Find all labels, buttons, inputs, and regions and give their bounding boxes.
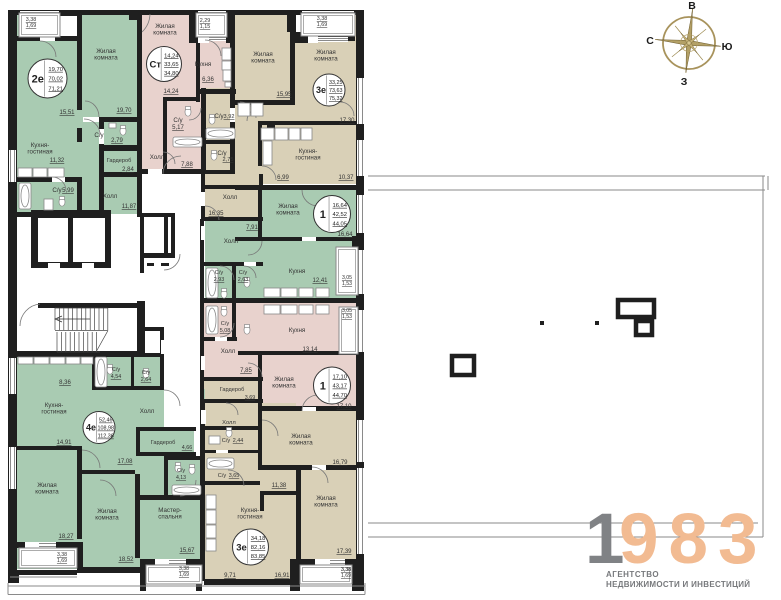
svg-text:С/у: С/у xyxy=(215,270,224,276)
svg-text:70,02: 70,02 xyxy=(48,77,63,83)
svg-text:52,46: 52,46 xyxy=(99,418,113,424)
svg-text:С/у: С/у xyxy=(112,367,121,373)
svg-text:2,84: 2,84 xyxy=(122,167,134,173)
svg-text:7,91: 7,91 xyxy=(246,225,258,231)
svg-text:17,39: 17,39 xyxy=(336,549,352,555)
svg-text:Холл: Холл xyxy=(221,348,236,355)
svg-text:4,54: 4,54 xyxy=(111,374,122,380)
svg-text:1,69: 1,69 xyxy=(26,23,37,29)
svg-text:16,35: 16,35 xyxy=(208,211,224,217)
svg-text:комната: комната xyxy=(153,30,177,37)
svg-text:7,88: 7,88 xyxy=(181,162,193,168)
svg-text:1,69: 1,69 xyxy=(179,572,189,578)
svg-text:17,08: 17,08 xyxy=(117,459,133,465)
svg-text:14,24: 14,24 xyxy=(164,53,179,59)
svg-text:14,24: 14,24 xyxy=(163,89,179,95)
svg-text:С/у: С/у xyxy=(217,150,227,157)
svg-text:2,64: 2,64 xyxy=(141,377,152,383)
svg-text:1,15: 1,15 xyxy=(200,24,211,30)
svg-text:С/у: С/у xyxy=(177,468,185,474)
svg-text:9,71: 9,71 xyxy=(224,573,236,579)
svg-text:10,37: 10,37 xyxy=(338,175,354,181)
svg-text:44,70: 44,70 xyxy=(333,393,348,399)
svg-text:16,91: 16,91 xyxy=(274,573,290,579)
svg-text:1: 1 xyxy=(320,380,326,392)
svg-text:11,87: 11,87 xyxy=(122,204,137,210)
svg-text:5,08: 5,08 xyxy=(220,328,231,334)
svg-text:З: З xyxy=(681,76,688,88)
svg-text:16,79: 16,79 xyxy=(332,460,348,466)
svg-text:1,69: 1,69 xyxy=(317,22,328,28)
svg-text:7,85: 7,85 xyxy=(240,368,252,374)
svg-text:4,66: 4,66 xyxy=(182,445,193,451)
svg-text:С/у: С/у xyxy=(142,370,151,376)
svg-text:3е: 3е xyxy=(316,85,326,95)
svg-text:Холл: Холл xyxy=(222,420,236,426)
svg-text:12,41: 12,41 xyxy=(312,278,328,284)
svg-text:1,53: 1,53 xyxy=(342,314,352,320)
svg-text:11,32: 11,32 xyxy=(50,158,65,164)
svg-text:С/у: С/у xyxy=(221,321,230,327)
svg-text:Холл: Холл xyxy=(150,154,165,161)
svg-text:16,64: 16,64 xyxy=(337,232,353,238)
svg-text:73,63: 73,63 xyxy=(329,88,343,94)
svg-text:Холл: Холл xyxy=(224,238,239,245)
svg-text:11,38: 11,38 xyxy=(272,483,287,489)
svg-text:1,69: 1,69 xyxy=(57,558,67,564)
svg-text:34,18: 34,18 xyxy=(251,536,266,542)
svg-text:Холл: Холл xyxy=(223,194,238,201)
svg-text:33,65: 33,65 xyxy=(164,62,179,68)
svg-text:19,70: 19,70 xyxy=(48,67,63,73)
svg-text:Холл: Холл xyxy=(140,408,155,415)
svg-text:комната: комната xyxy=(276,210,300,217)
svg-text:С/у: С/у xyxy=(52,187,62,194)
svg-text:2,75: 2,75 xyxy=(223,157,234,163)
svg-text:комната: комната xyxy=(314,502,338,509)
svg-text:АГЕНТСТВО: АГЕНТСТВО xyxy=(606,570,659,579)
svg-text:17,10: 17,10 xyxy=(336,404,352,410)
svg-text:14,91: 14,91 xyxy=(56,440,72,446)
svg-text:комната: комната xyxy=(251,58,275,65)
svg-text:2,44: 2,44 xyxy=(233,438,244,444)
svg-text:15,67: 15,67 xyxy=(179,548,195,554)
svg-text:С/у: С/у xyxy=(173,117,183,124)
svg-text:4,13: 4,13 xyxy=(176,475,186,481)
svg-text:16,64: 16,64 xyxy=(333,203,348,209)
svg-text:6,36: 6,36 xyxy=(202,77,214,83)
svg-text:3,38: 3,38 xyxy=(341,567,351,573)
svg-text:17,30: 17,30 xyxy=(339,118,355,124)
svg-text:43,17: 43,17 xyxy=(333,384,348,390)
svg-text:4е: 4е xyxy=(86,423,96,433)
svg-text:2,93: 2,93 xyxy=(214,277,225,283)
svg-text:1: 1 xyxy=(320,209,326,221)
svg-text:Гардероб: Гардероб xyxy=(151,440,176,446)
svg-text:2,79: 2,79 xyxy=(111,138,123,144)
svg-text:комната: комната xyxy=(95,515,119,522)
svg-text:Кухня: Кухня xyxy=(195,61,212,68)
svg-text:19,70: 19,70 xyxy=(116,108,132,114)
svg-text:гостиная: гостиная xyxy=(237,514,262,521)
svg-text:комната: комната xyxy=(289,440,313,447)
svg-text:1,53: 1,53 xyxy=(342,281,352,287)
svg-text:гостиная: гостиная xyxy=(27,149,52,156)
svg-text:75,32: 75,32 xyxy=(329,96,343,102)
svg-text:гостиная: гостиная xyxy=(41,409,66,416)
svg-text:С/у: С/у xyxy=(94,132,104,139)
svg-text:комната: комната xyxy=(314,56,338,63)
svg-text:3,92: 3,92 xyxy=(224,114,235,120)
svg-text:Ст: Ст xyxy=(149,59,161,70)
svg-text:НЕДВИЖИМОСТИ И ИНВЕСТИЦИЙ: НЕДВИЖИМОСТИ И ИНВЕСТИЦИЙ xyxy=(606,580,750,589)
svg-text:15,51: 15,51 xyxy=(59,110,75,116)
svg-text:1: 1 xyxy=(585,500,623,579)
svg-text:С/у: С/у xyxy=(239,270,248,276)
svg-text:комната: комната xyxy=(35,489,59,496)
svg-text:82,16: 82,16 xyxy=(251,545,266,551)
svg-text:34,80: 34,80 xyxy=(164,71,179,77)
svg-text:6,99: 6,99 xyxy=(277,175,289,181)
svg-text:83,85: 83,85 xyxy=(251,554,266,560)
svg-text:17,10: 17,10 xyxy=(333,374,348,380)
svg-text:С: С xyxy=(646,35,654,47)
svg-text:С/у: С/у xyxy=(218,473,227,479)
svg-text:13,14: 13,14 xyxy=(302,347,318,353)
svg-text:комната: комната xyxy=(94,55,118,62)
svg-text:Холл: Холл xyxy=(103,193,118,200)
svg-text:1,69: 1,69 xyxy=(341,573,351,579)
svg-text:2,63: 2,63 xyxy=(238,277,249,283)
svg-text:3е: 3е xyxy=(236,542,247,553)
svg-text:Гардероб: Гардероб xyxy=(220,387,245,393)
svg-text:71,21: 71,21 xyxy=(48,86,63,92)
svg-text:33,25: 33,25 xyxy=(329,80,343,86)
svg-text:18,27: 18,27 xyxy=(58,534,74,540)
svg-text:комната: комната xyxy=(272,383,296,390)
svg-text:108,98: 108,98 xyxy=(97,426,114,432)
svg-text:18,52: 18,52 xyxy=(118,557,134,563)
svg-text:Кухня: Кухня xyxy=(289,268,306,275)
svg-text:2е: 2е xyxy=(32,73,44,85)
svg-text:5,99: 5,99 xyxy=(62,188,74,194)
svg-text:гостиная: гостиная xyxy=(295,155,320,162)
svg-text:5,17: 5,17 xyxy=(172,125,184,131)
svg-text:15,95: 15,95 xyxy=(276,92,292,98)
svg-text:42,52: 42,52 xyxy=(333,212,348,218)
svg-text:Гардероб: Гардероб xyxy=(107,158,132,164)
svg-text:Ю: Ю xyxy=(722,41,733,53)
svg-text:112,36: 112,36 xyxy=(98,434,114,440)
svg-text:С/у: С/у xyxy=(222,438,231,444)
svg-text:Кухня: Кухня xyxy=(289,327,306,334)
svg-text:983: 983 xyxy=(619,500,767,579)
svg-text:спальня: спальня xyxy=(158,514,182,521)
svg-text:3,65: 3,65 xyxy=(229,473,240,479)
svg-text:44,05: 44,05 xyxy=(333,221,348,227)
svg-text:3,69: 3,69 xyxy=(245,395,256,401)
svg-text:В: В xyxy=(688,0,696,12)
svg-text:8,36: 8,36 xyxy=(59,380,71,386)
